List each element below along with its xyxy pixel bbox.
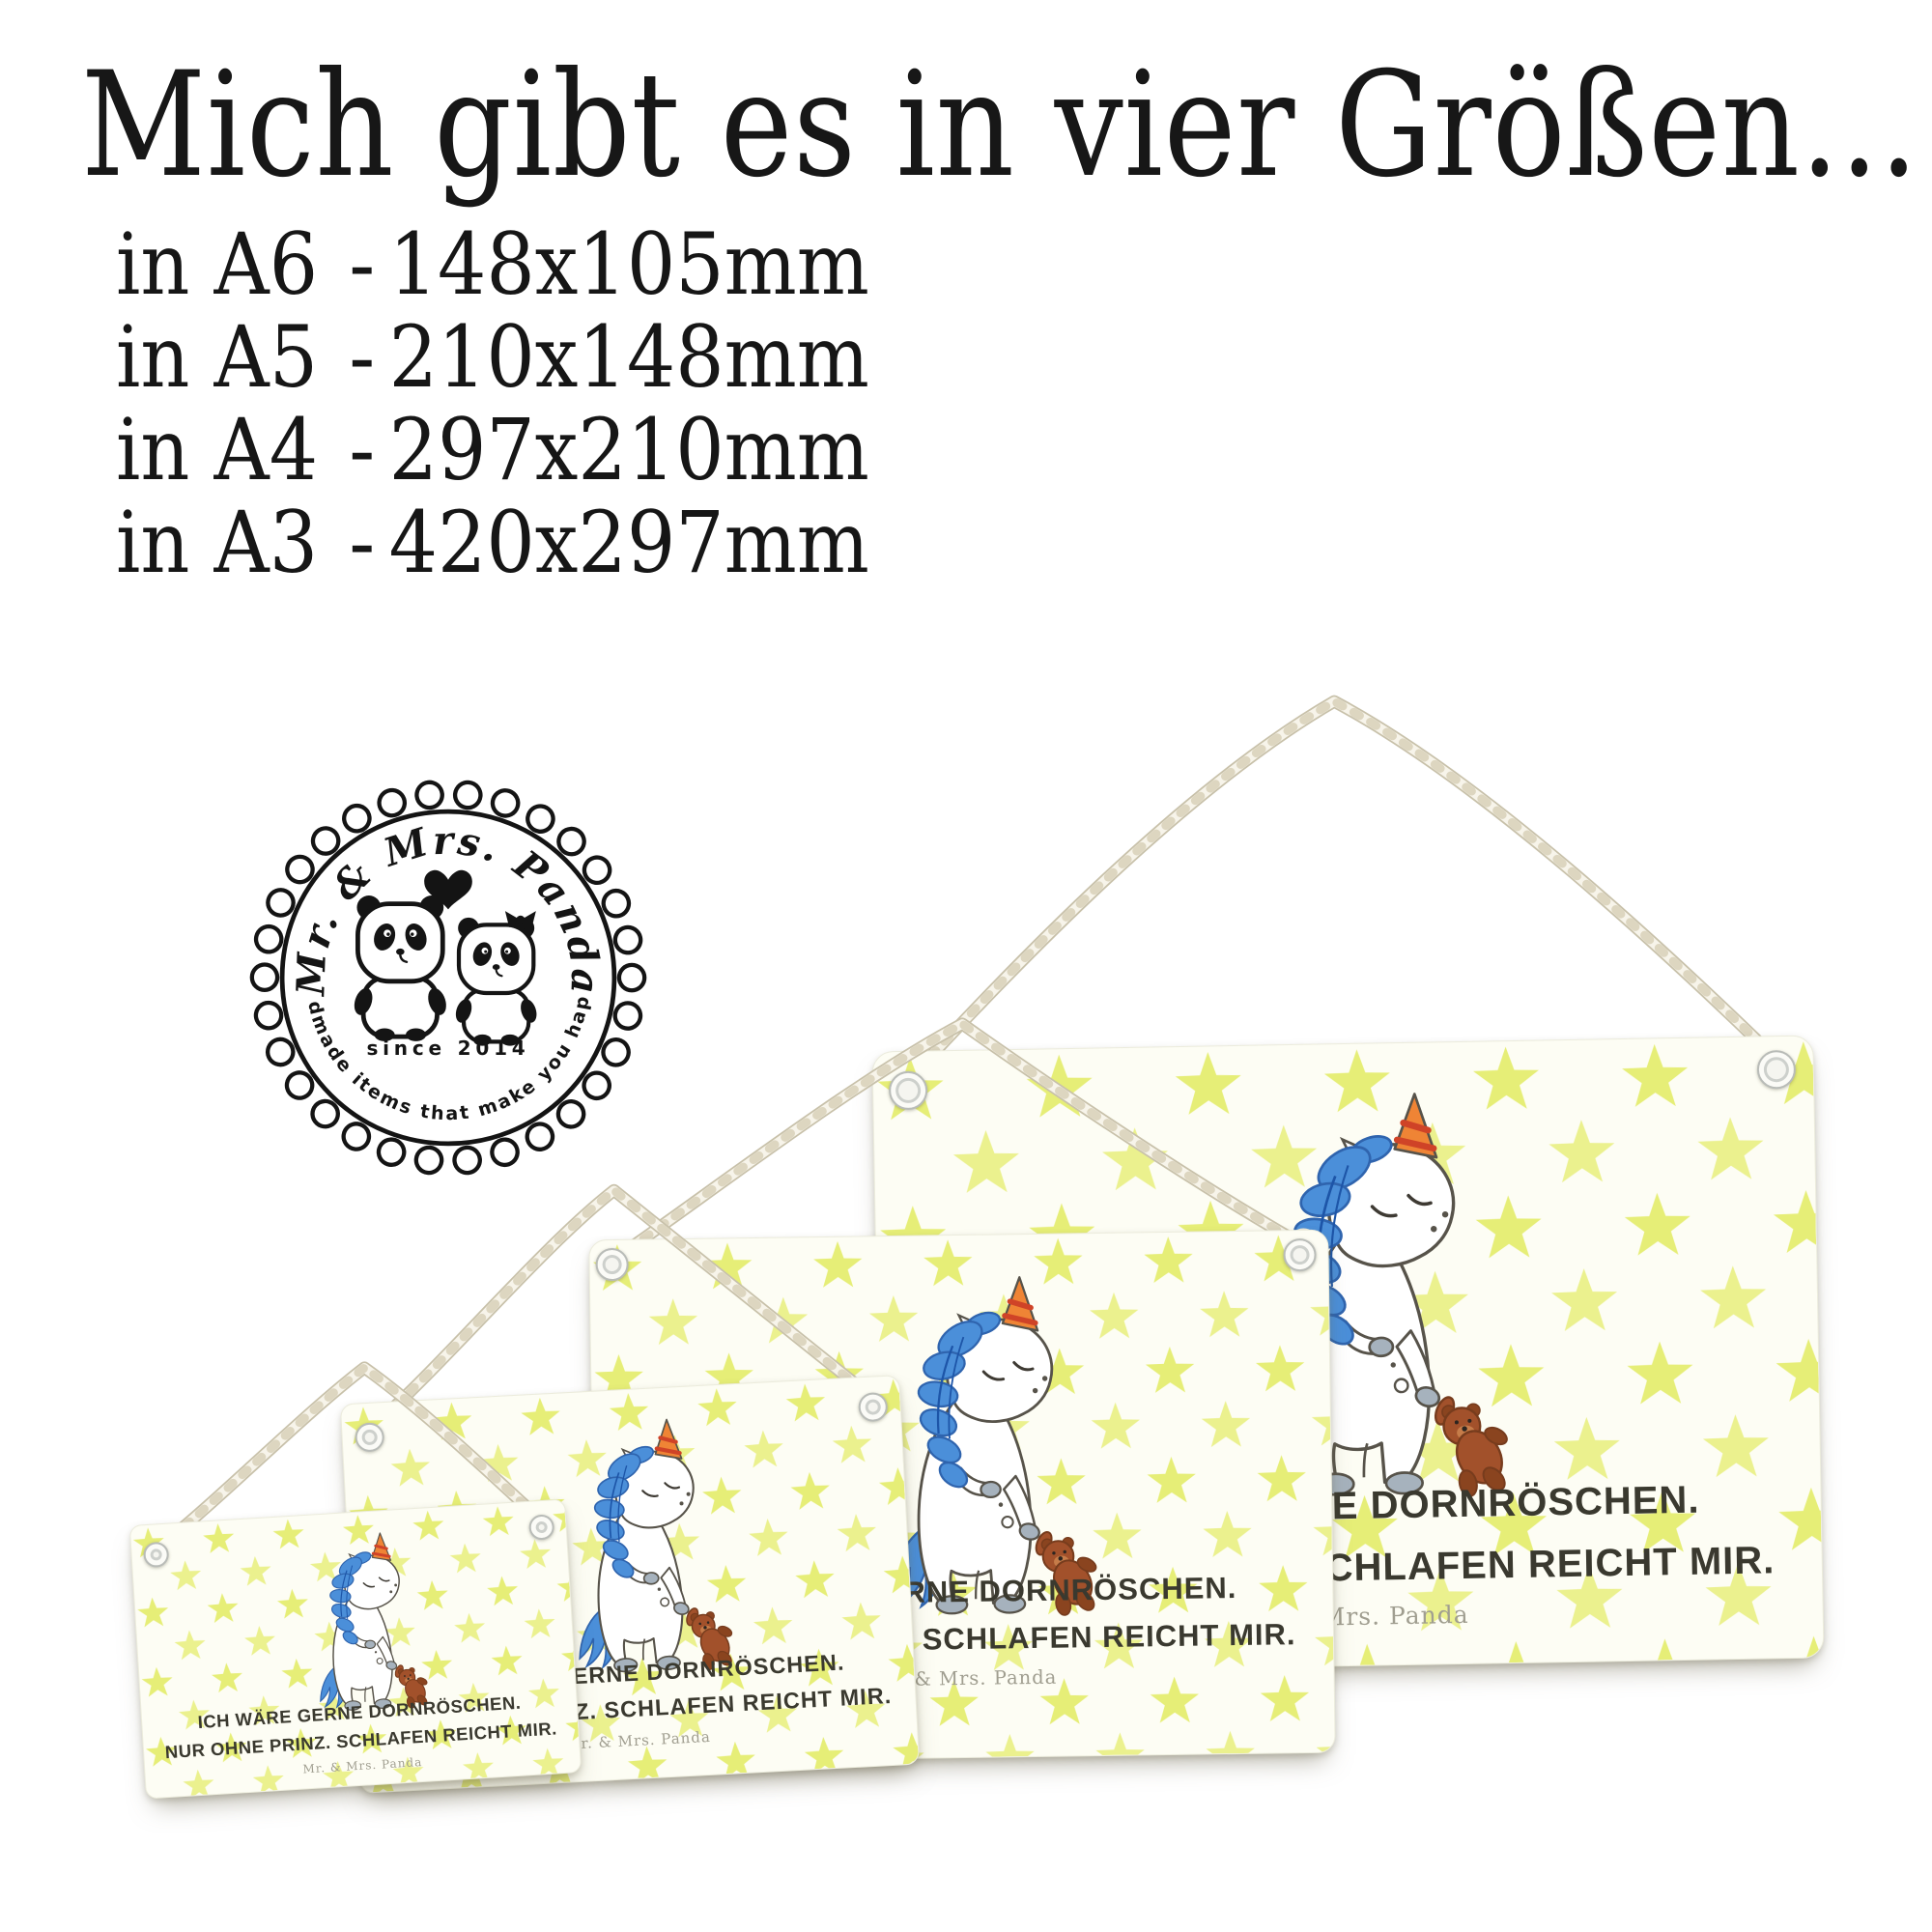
size-list: in A6 - 148x105mm in A5 - 210x148mm in A… <box>116 214 952 585</box>
size-label: in A6 <box>116 214 335 314</box>
size-label: in A4 <box>116 400 335 499</box>
size-dimensions: 420x297mm <box>389 493 869 592</box>
size-label: in A3 <box>116 493 335 592</box>
brand-badge: Mr. & Mrs. Panda <box>243 773 653 1182</box>
size-separator: - <box>335 307 389 407</box>
size-dimensions: 210x148mm <box>389 307 869 407</box>
hanging-rope <box>866 680 1814 1093</box>
size-label: in A5 <box>116 307 335 407</box>
size-separator: - <box>335 214 389 314</box>
size-separator: - <box>335 400 389 499</box>
size-row-a6: in A6 - 148x105mm <box>116 214 869 307</box>
sign-a6: ICH WÄRE GERNE DORNRÖSCHEN. NUR OHNE PRI… <box>129 1498 582 1799</box>
sign-board: ICH WÄRE GERNE DORNRÖSCHEN. NUR OHNE PRI… <box>129 1498 582 1799</box>
headline: Mich gibt es in vier Größen... <box>81 46 1918 206</box>
size-dimensions: 148x105mm <box>389 214 869 314</box>
unicorn-teddy-illustration <box>240 1524 459 1719</box>
size-separator: - <box>335 493 389 592</box>
badge-since-text: since 2014 <box>366 1037 529 1060</box>
size-row-a3: in A3 - 420x297mm <box>116 493 869 585</box>
size-dimensions: 297x210mm <box>389 400 869 499</box>
size-row-a5: in A5 - 210x148mm <box>116 307 869 400</box>
product-image: Mich gibt es in vier Größen... in A6 - 1… <box>0 0 1932 1932</box>
mrs-panda-illustration <box>453 911 539 1045</box>
size-row-a4: in A4 - 297x210mm <box>116 400 869 493</box>
mr-panda-illustration <box>352 895 450 1041</box>
